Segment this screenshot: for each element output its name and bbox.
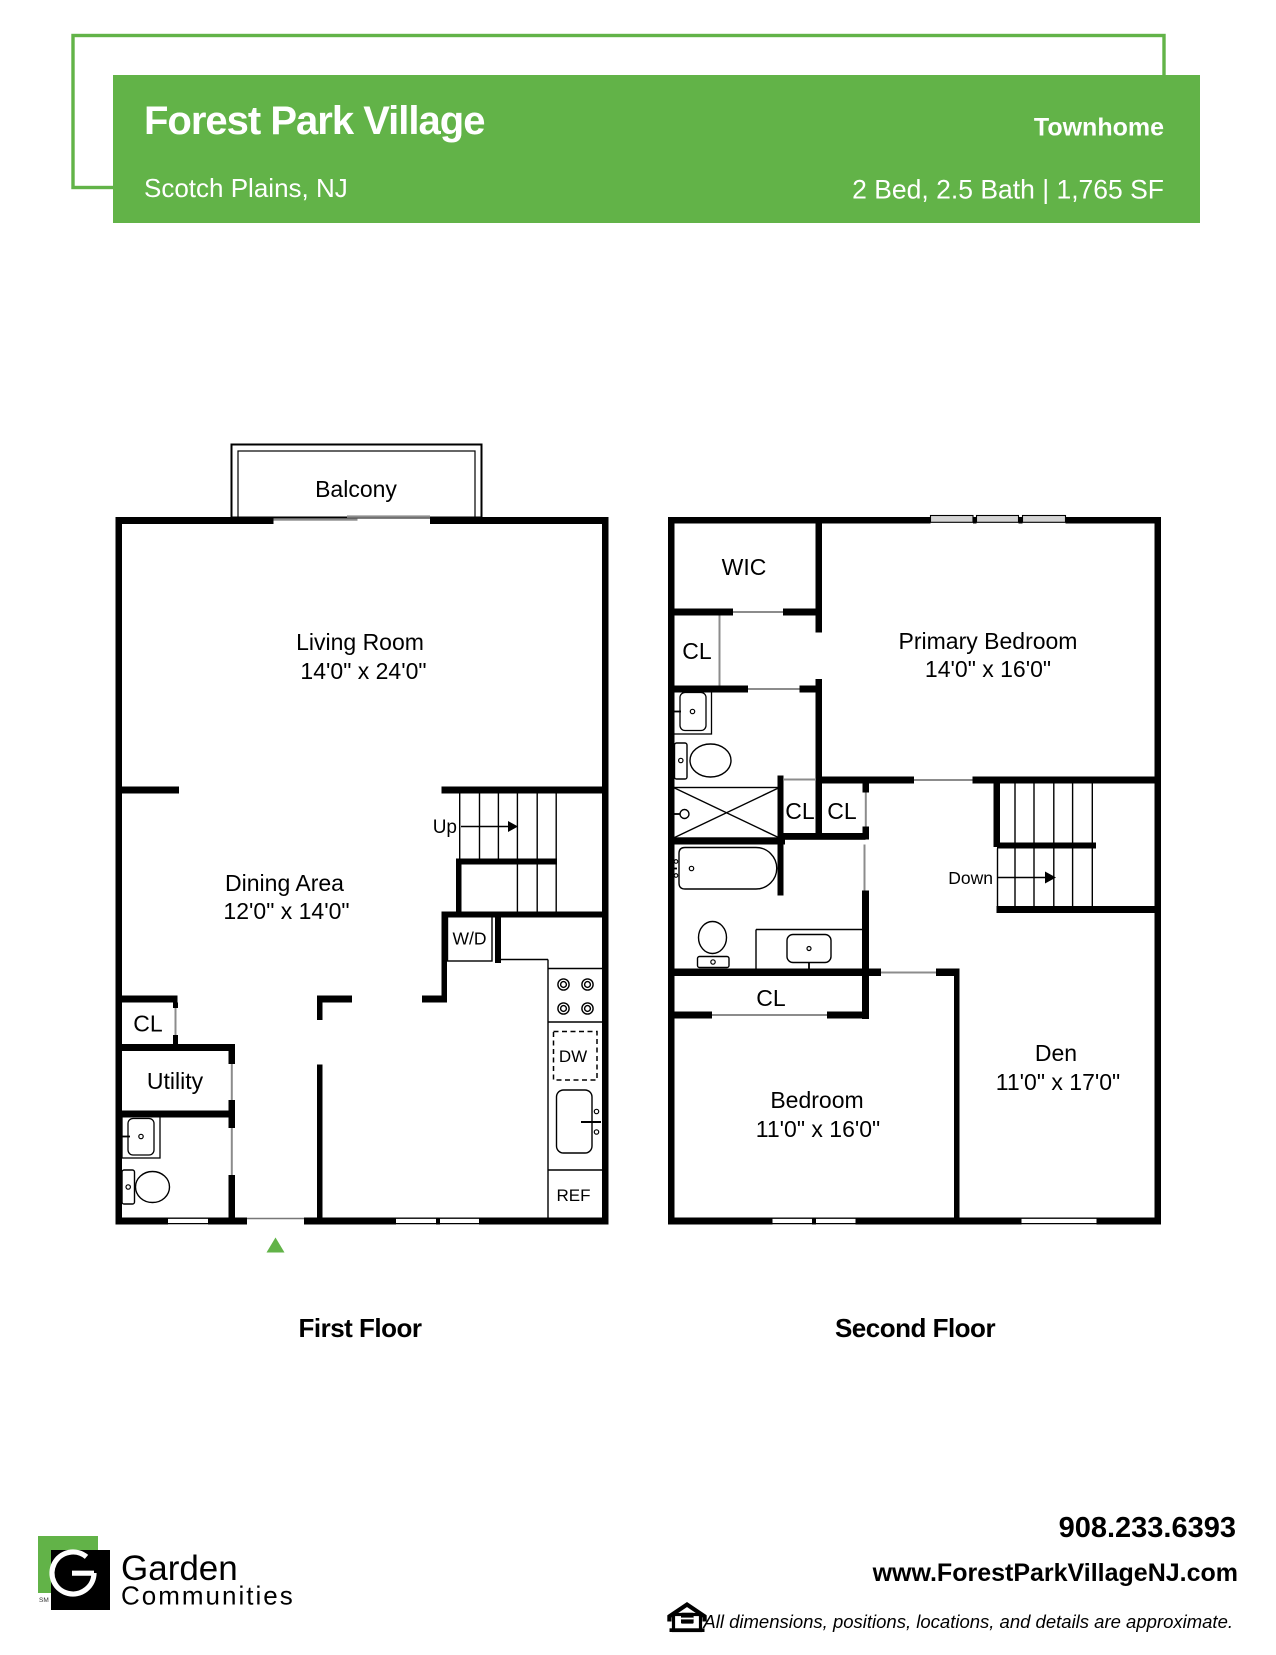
svg-text:Forest Park Village: Forest Park Village xyxy=(144,99,484,143)
svg-text:CL: CL xyxy=(756,985,786,1011)
svg-text:12'0" x 14'0": 12'0" x 14'0" xyxy=(223,898,349,924)
svg-text:Down: Down xyxy=(948,868,993,888)
svg-text:Utility: Utility xyxy=(147,1068,204,1094)
svg-text:14'0" x 16'0": 14'0" x 16'0" xyxy=(925,656,1051,682)
svg-text:2 Bed, 2.5 Bath | 1,765 SF: 2 Bed, 2.5 Bath | 1,765 SF xyxy=(852,175,1164,205)
svg-text:908.233.6393: 908.233.6393 xyxy=(1059,1512,1236,1544)
svg-text:Townhome: Townhome xyxy=(1034,114,1164,142)
svg-text:All dimensions, positions, loc: All dimensions, positions, locations, an… xyxy=(702,1611,1233,1632)
svg-text:Second Floor: Second Floor xyxy=(835,1313,996,1343)
svg-text:Up: Up xyxy=(433,817,457,838)
svg-text:www.ForestParkVillageNJ.com: www.ForestParkVillageNJ.com xyxy=(872,1559,1238,1587)
svg-text:CL: CL xyxy=(133,1011,163,1037)
svg-text:REF: REF xyxy=(557,1186,591,1205)
svg-text:Primary Bedroom: Primary Bedroom xyxy=(899,628,1078,654)
svg-text:Balcony: Balcony xyxy=(315,476,397,502)
svg-text:First Floor: First Floor xyxy=(298,1313,421,1343)
svg-text:Dining Area: Dining Area xyxy=(225,870,344,896)
svg-text:Living Room: Living Room xyxy=(296,629,424,655)
svg-text:Den: Den xyxy=(1035,1040,1077,1066)
svg-text:11'0" x 16'0": 11'0" x 16'0" xyxy=(756,1116,880,1142)
svg-text:WIC: WIC xyxy=(722,554,767,580)
svg-text:CL: CL xyxy=(827,798,857,824)
svg-text:SM: SM xyxy=(39,1597,49,1604)
svg-text:14'0" x 24'0": 14'0" x 24'0" xyxy=(300,658,426,684)
svg-text:Scotch Plains, NJ: Scotch Plains, NJ xyxy=(144,173,348,203)
svg-text:CL: CL xyxy=(785,798,815,824)
svg-text:W/D: W/D xyxy=(452,929,486,949)
svg-text:11'0" x 17'0": 11'0" x 17'0" xyxy=(996,1069,1120,1095)
svg-text:Bedroom: Bedroom xyxy=(770,1087,863,1113)
svg-text:Communities: Communities xyxy=(121,1581,295,1611)
svg-text:CL: CL xyxy=(682,638,712,664)
svg-text:DW: DW xyxy=(559,1047,587,1066)
